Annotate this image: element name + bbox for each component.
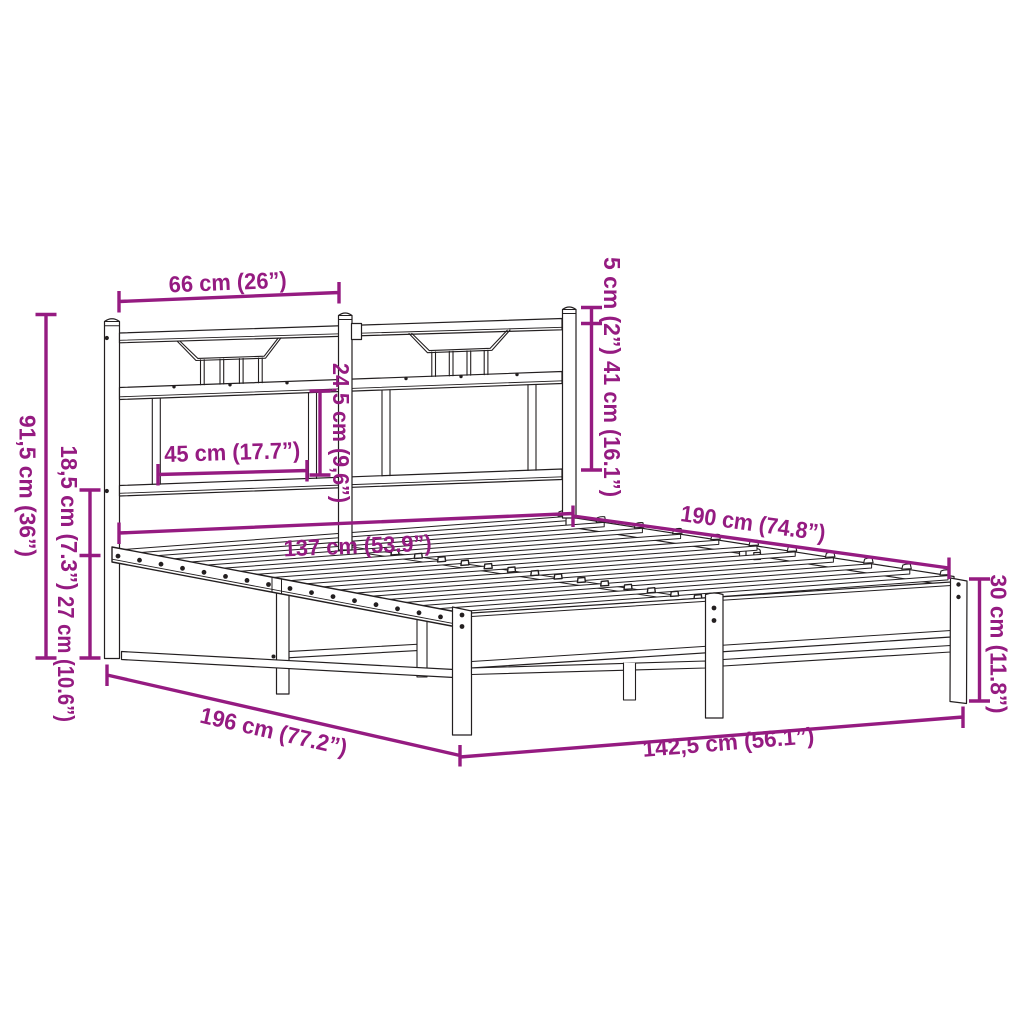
svg-text:66 cm (26”): 66 cm (26”) bbox=[168, 267, 287, 298]
svg-text:30 cm (11.8”): 30 cm (11.8”) bbox=[986, 575, 1012, 714]
svg-text:41 cm (16.1”): 41 cm (16.1”) bbox=[599, 361, 625, 497]
svg-text:18,5 cm (7.3”): 18,5 cm (7.3”) bbox=[56, 446, 82, 591]
svg-text:24,5 cm (9,6”): 24,5 cm (9,6”) bbox=[328, 363, 354, 503]
svg-text:45 cm (17.7”): 45 cm (17.7”) bbox=[164, 437, 301, 467]
svg-text:91,5 cm (36”): 91,5 cm (36”) bbox=[15, 415, 41, 557]
svg-text:27 cm (10.6”): 27 cm (10.6”) bbox=[53, 596, 79, 722]
svg-text:5 cm (2”): 5 cm (2”) bbox=[599, 257, 625, 355]
